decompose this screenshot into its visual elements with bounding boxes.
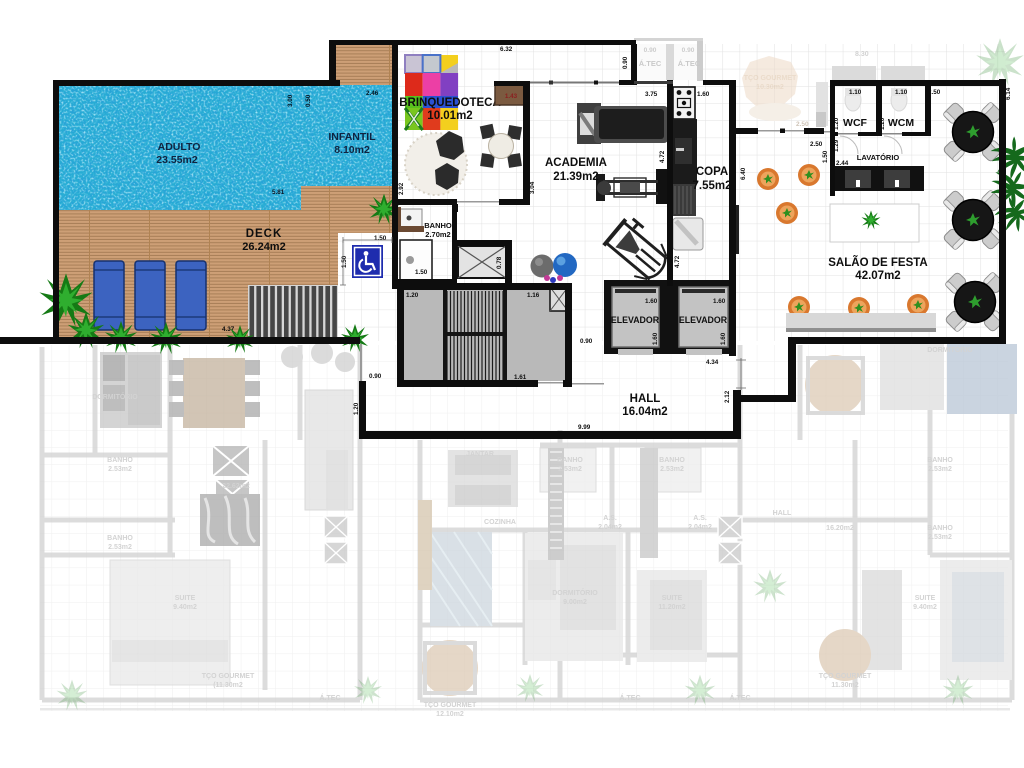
svg-text:2.44: 2.44 [836,160,849,167]
svg-text:HALL: HALL [773,510,792,517]
svg-text:BANHO: BANHO [927,457,953,464]
svg-text:BANHO: BANHO [424,221,452,230]
svg-text:6.32: 6.32 [500,46,513,53]
svg-text:0.90: 0.90 [622,56,629,69]
svg-text:COPA: COPA [696,166,728,178]
svg-text:JANTAR: JANTAR [466,451,494,458]
svg-text:BANHO: BANHO [107,535,133,542]
svg-text:(11.30m2: (11.30m2 [213,682,243,689]
svg-text:2.53m2: 2.53m2 [108,466,132,473]
svg-text:BANHO: BANHO [659,457,685,464]
svg-text:4.72: 4.72 [674,255,681,268]
svg-text:26.24m2: 26.24m2 [242,241,285,253]
svg-text:COZINHA: COZINHA [484,519,516,526]
svg-text:2.04m2: 2.04m2 [688,524,712,531]
svg-text:HALL: HALL [630,393,661,405]
svg-text:1.50: 1.50 [415,269,428,276]
svg-text:4.72: 4.72 [659,150,666,163]
svg-text:1.50: 1.50 [374,235,387,242]
svg-text:BANHO: BANHO [107,457,133,464]
svg-text:9.40m2: 9.40m2 [173,604,197,611]
svg-text:4.34: 4.34 [706,359,719,366]
svg-text:SUITE: SUITE [662,595,683,602]
svg-text:1.43: 1.43 [505,93,518,100]
svg-text:Á.TEC: Á.TEC [730,693,751,702]
svg-text:8.30: 8.30 [855,51,869,58]
svg-text:ADULTO: ADULTO [158,141,201,153]
svg-text:2.53m2: 2.53m2 [108,544,132,551]
svg-text:Á.TEC: Á.TEC [639,59,662,68]
svg-text:42.07m2: 42.07m2 [855,270,900,282]
svg-text:TÇO GOURMET: TÇO GOURMET [744,75,797,82]
svg-text:SUITE: SUITE [175,595,196,602]
svg-text:0.78: 0.78 [496,256,503,269]
svg-text:7.55m2: 7.55m2 [692,180,731,192]
svg-text:DECK: DECK [246,228,283,240]
svg-text:1.60: 1.60 [645,298,658,305]
svg-text:Á.TEC: Á.TEC [320,693,341,702]
svg-text:SUITE: SUITE [915,595,936,602]
svg-text:3.04: 3.04 [529,181,536,194]
svg-text:2.92: 2.92 [398,182,405,195]
svg-text:0.50: 0.50 [305,94,312,107]
svg-text:ACADEMIA: ACADEMIA [545,157,607,169]
svg-text:1.60: 1.60 [720,332,727,345]
svg-text:0.90: 0.90 [682,47,695,54]
svg-text:11.30m2: 11.30m2 [831,682,858,689]
svg-text:DORMITÓRIO: DORMITÓRIO [927,345,973,354]
svg-text:0.90: 0.90 [644,47,657,54]
svg-text:BRINQUEDOTECA: BRINQUEDOTECA [399,97,501,109]
svg-text:8.10m2: 8.10m2 [334,144,370,156]
svg-text:TÇO GOURMET: TÇO GOURMET [819,673,872,680]
svg-text:1.61: 1.61 [514,374,527,381]
svg-text:5.81: 5.81 [272,189,285,196]
svg-text:BANHO: BANHO [557,457,583,464]
svg-text:9.99: 9.99 [578,424,591,431]
svg-text:ELEVADOR: ELEVADOR [679,315,728,325]
svg-text:10.30m2: 10.30m2 [756,84,784,91]
svg-text:10.01m2: 10.01m2 [427,110,472,122]
svg-text:Á.TEC: Á.TEC [678,59,701,68]
svg-text:ELEVADOR: ELEVADOR [611,315,660,325]
svg-text:2.53m2: 2.53m2 [660,466,684,473]
svg-text:2.53m2: 2.53m2 [558,466,582,473]
svg-text:1.16: 1.16 [527,292,540,299]
svg-text:DORMITÓRIO: DORMITÓRIO [552,588,598,597]
svg-text:WCF: WCF [843,117,867,129]
svg-text:22.62m2: 22.62m2 [222,483,250,490]
svg-text:3.75: 3.75 [645,91,658,98]
svg-text:1.50: 1.50 [341,255,348,268]
svg-text:1.10: 1.10 [895,89,908,96]
svg-text:2.53m2: 2.53m2 [928,466,952,473]
svg-text:LAVATÓRIO: LAVATÓRIO [857,153,900,162]
svg-text:TÇO GOURMET: TÇO GOURMET [202,673,255,680]
svg-text:2.04m2: 2.04m2 [598,524,622,531]
svg-text:1.60: 1.60 [652,332,659,345]
svg-text:21.39m2: 21.39m2 [553,171,598,183]
svg-text:1.60: 1.60 [713,298,726,305]
svg-text:16.20m2: 16.20m2 [826,525,854,532]
svg-text:16.04m2: 16.04m2 [622,406,667,418]
svg-text:A.S.: A.S. [693,515,707,522]
svg-text:2.50: 2.50 [810,141,823,148]
svg-text:BANHO: BANHO [927,525,953,532]
svg-text:1.50: 1.50 [822,150,829,163]
svg-text:2.12: 2.12 [724,390,731,403]
svg-text:WCM: WCM [888,117,914,129]
svg-text:23.55m2: 23.55m2 [156,154,198,166]
svg-text:2.46: 2.46 [366,90,379,97]
svg-text:Á.TEC: Á.TEC [620,693,641,702]
svg-text:0.90: 0.90 [580,338,593,345]
svg-text:3.00: 3.00 [287,94,294,107]
svg-text:6.40: 6.40 [740,167,747,180]
svg-text:TÇO GOURMET: TÇO GOURMET [424,702,477,709]
svg-text:1.60: 1.60 [697,91,710,98]
svg-text:1.10: 1.10 [849,89,862,96]
svg-text:0.90: 0.90 [369,373,382,380]
svg-text:INFANTIL: INFANTIL [328,131,376,143]
svg-text:9.00m2: 9.00m2 [563,599,587,606]
svg-text:9.40m2: 9.40m2 [913,604,937,611]
svg-text:A.S.: A.S. [603,515,617,522]
svg-text:11.20m2: 11.20m2 [658,604,685,611]
svg-text:DORMITÓRIO: DORMITÓRIO [92,392,138,401]
svg-text:2.70m2: 2.70m2 [425,230,450,239]
svg-text:2.50: 2.50 [796,121,809,128]
svg-text:2.53m2: 2.53m2 [928,534,952,541]
svg-text:1.20: 1.20 [353,402,360,415]
svg-text:12.10m2: 12.10m2 [436,711,464,718]
svg-text:SALÃO DE FESTA: SALÃO DE FESTA [828,256,927,269]
svg-text:6.14: 6.14 [1005,87,1012,100]
svg-text:1.20: 1.20 [406,292,419,299]
